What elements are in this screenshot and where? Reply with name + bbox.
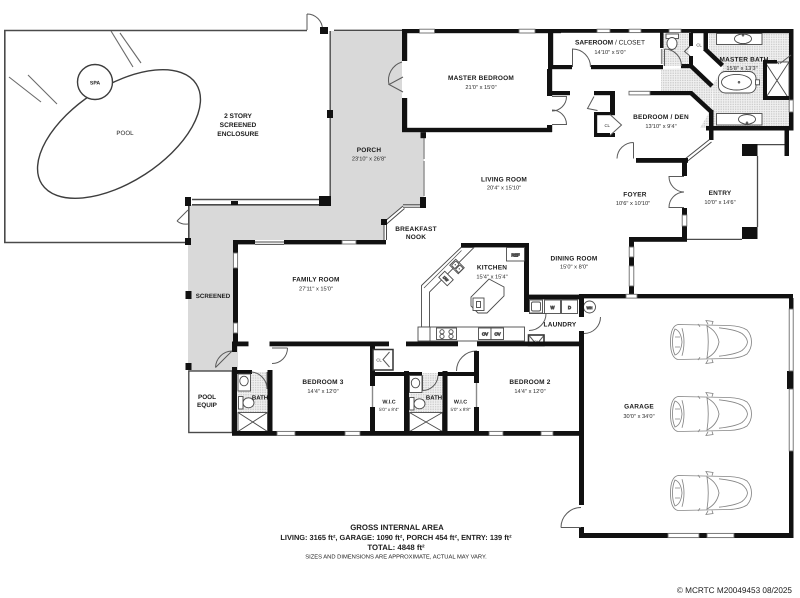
svg-text:CL: CL [696,43,702,48]
svg-text:23'10" x 26'8": 23'10" x 26'8" [352,157,386,163]
svg-text:GARAGE: GARAGE [624,404,654,411]
svg-text:REF: REF [511,253,520,258]
svg-text:27'11" x 15'0": 27'11" x 15'0" [299,287,333,293]
svg-text:SPA: SPA [90,81,101,87]
svg-text:OV: OV [482,332,488,337]
svg-text:BEDROOM / DEN: BEDROOM / DEN [633,114,689,121]
svg-text:POOL: POOL [116,130,134,137]
svg-text:SAFEROOM / CLOSET: SAFEROOM / CLOSET [575,40,645,47]
svg-text:CL: CL [376,358,382,363]
svg-text:ENTRY: ENTRY [709,190,732,197]
svg-text:W: W [551,305,555,310]
svg-text:SIZES AND DIMENSIONS ARE APPRO: SIZES AND DIMENSIONS ARE APPROXIMATE, AC… [305,554,487,561]
svg-text:20'4" x 15'10": 20'4" x 15'10" [487,186,521,192]
svg-text:BEDROOM 2: BEDROOM 2 [509,379,550,386]
svg-text:2 STORY: 2 STORY [224,113,252,120]
svg-text:W.I.C: W.I.C [454,400,467,406]
svg-text:BATH: BATH [426,395,442,402]
svg-text:CL: CL [605,123,611,128]
svg-text:POOL: POOL [198,394,216,401]
svg-text:SCREENED: SCREENED [196,293,231,300]
svg-text:10'6" x 10'10": 10'6" x 10'10" [616,201,650,207]
svg-text:30'0" x 34'0": 30'0" x 34'0" [623,414,654,420]
svg-text:NOOK: NOOK [406,234,426,241]
svg-text:SCREENED: SCREENED [220,122,257,129]
svg-text:LIVING ROOM: LIVING ROOM [481,177,527,184]
svg-text:14'4" x 12'0": 14'4" x 12'0" [307,389,338,395]
svg-text:13'10" x 9'4": 13'10" x 9'4" [645,124,676,130]
svg-text:EQUIP: EQUIP [197,402,218,409]
svg-text:FOYER: FOYER [623,192,646,199]
svg-text:LAUNDRY: LAUNDRY [544,322,577,329]
svg-text:BEDROOM 3: BEDROOM 3 [302,379,343,386]
svg-text:10'0" x 14'6": 10'0" x 14'6" [704,200,735,206]
svg-text:GROSS INTERNAL AREA: GROSS INTERNAL AREA [350,523,444,532]
svg-text:TOTAL: 4848 ft²: TOTAL: 4848 ft² [367,543,425,552]
svg-text:D: D [568,305,571,310]
svg-text:5'0" x 8'4": 5'0" x 8'4" [379,407,399,412]
svg-text:FAMILY ROOM: FAMILY ROOM [292,277,339,284]
svg-text:OV: OV [494,332,500,337]
svg-text:21'0" x 15'0": 21'0" x 15'0" [465,85,496,91]
svg-text:PORCH: PORCH [357,147,382,154]
svg-text:15'4" x 15'4": 15'4" x 15'4" [476,275,507,281]
svg-text:MASTER BEDROOM: MASTER BEDROOM [448,75,514,82]
svg-text:DINING ROOM: DINING ROOM [551,256,598,263]
svg-text:MASTER BATH: MASTER BATH [719,57,768,64]
svg-text:14'10" x 5'0": 14'10" x 5'0" [594,50,625,56]
svg-text:WH: WH [587,306,593,310]
svg-text:W.I.C: W.I.C [382,400,395,406]
svg-text:BREAKFAST: BREAKFAST [395,226,437,233]
svg-text:ENCLOSURE: ENCLOSURE [217,131,259,138]
svg-text:BATH: BATH [252,395,268,402]
svg-text:5'0" x 8'8": 5'0" x 8'8" [450,407,470,412]
svg-text:14'4" x 12'0": 14'4" x 12'0" [514,389,545,395]
svg-text:15'0" x 8'0": 15'0" x 8'0" [560,265,588,271]
svg-text:© MCRTC M20049453 08/2025: © MCRTC M20049453 08/2025 [677,586,793,595]
svg-text:LIVING: 3165 ft², GARAGE: 1090: LIVING: 3165 ft², GARAGE: 1090 ft², PORC… [280,533,512,542]
svg-text:KITCHEN: KITCHEN [477,265,507,272]
